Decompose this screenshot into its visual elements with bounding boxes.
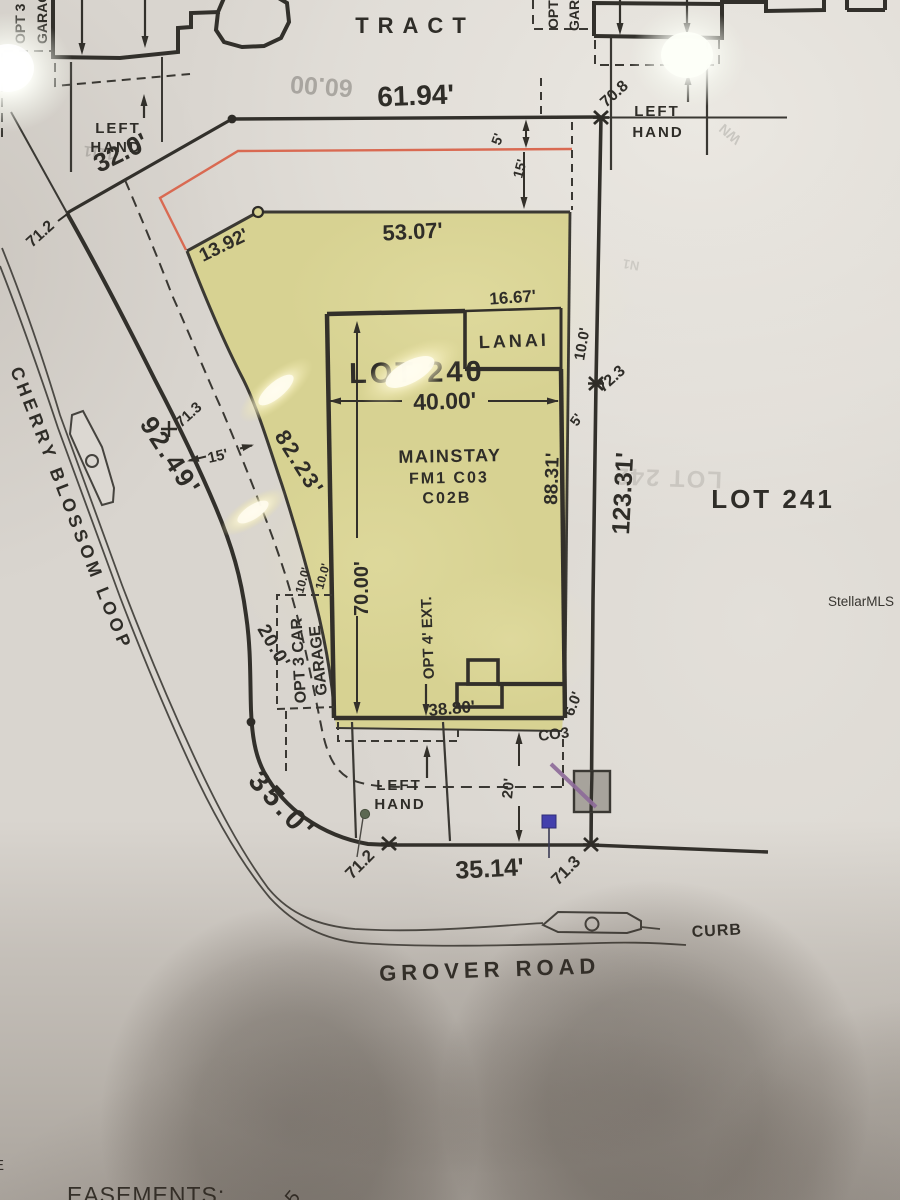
svg-text:LOT 241: LOT 241: [711, 484, 835, 514]
svg-text:53.07': 53.07': [382, 217, 444, 245]
svg-text:70.00': 70.00': [351, 561, 373, 616]
svg-text:20': 20': [499, 777, 518, 799]
svg-text:FM1 C03: FM1 C03: [409, 469, 489, 487]
svg-text:HAND: HAND: [374, 796, 425, 813]
svg-text:StellarMLS: StellarMLS: [828, 594, 894, 609]
svg-text:16.67': 16.67': [489, 286, 537, 308]
svg-text:MAINSTAY: MAINSTAY: [398, 445, 501, 467]
svg-text:38.80': 38.80': [428, 697, 476, 720]
svg-text:88.31': 88.31': [541, 452, 564, 505]
svg-text:OPT 4' EXT.: OPT 4' EXT.: [418, 596, 438, 679]
svg-text:60.00: 60.00: [289, 70, 353, 102]
svg-text:LANAI: LANAI: [478, 330, 549, 352]
svg-text:LEFT: LEFT: [376, 777, 422, 794]
svg-text:TRACT: TRACT: [355, 13, 475, 38]
svg-text:HAND: HAND: [632, 124, 683, 141]
svg-text:123.31': 123.31': [607, 452, 639, 536]
svg-text:GARAGE: GARAGE: [566, 0, 582, 31]
svg-text:61.94': 61.94': [377, 79, 455, 113]
svg-text:OPT 3: OPT 3: [545, 0, 561, 29]
svg-text:C02B: C02B: [422, 490, 471, 508]
